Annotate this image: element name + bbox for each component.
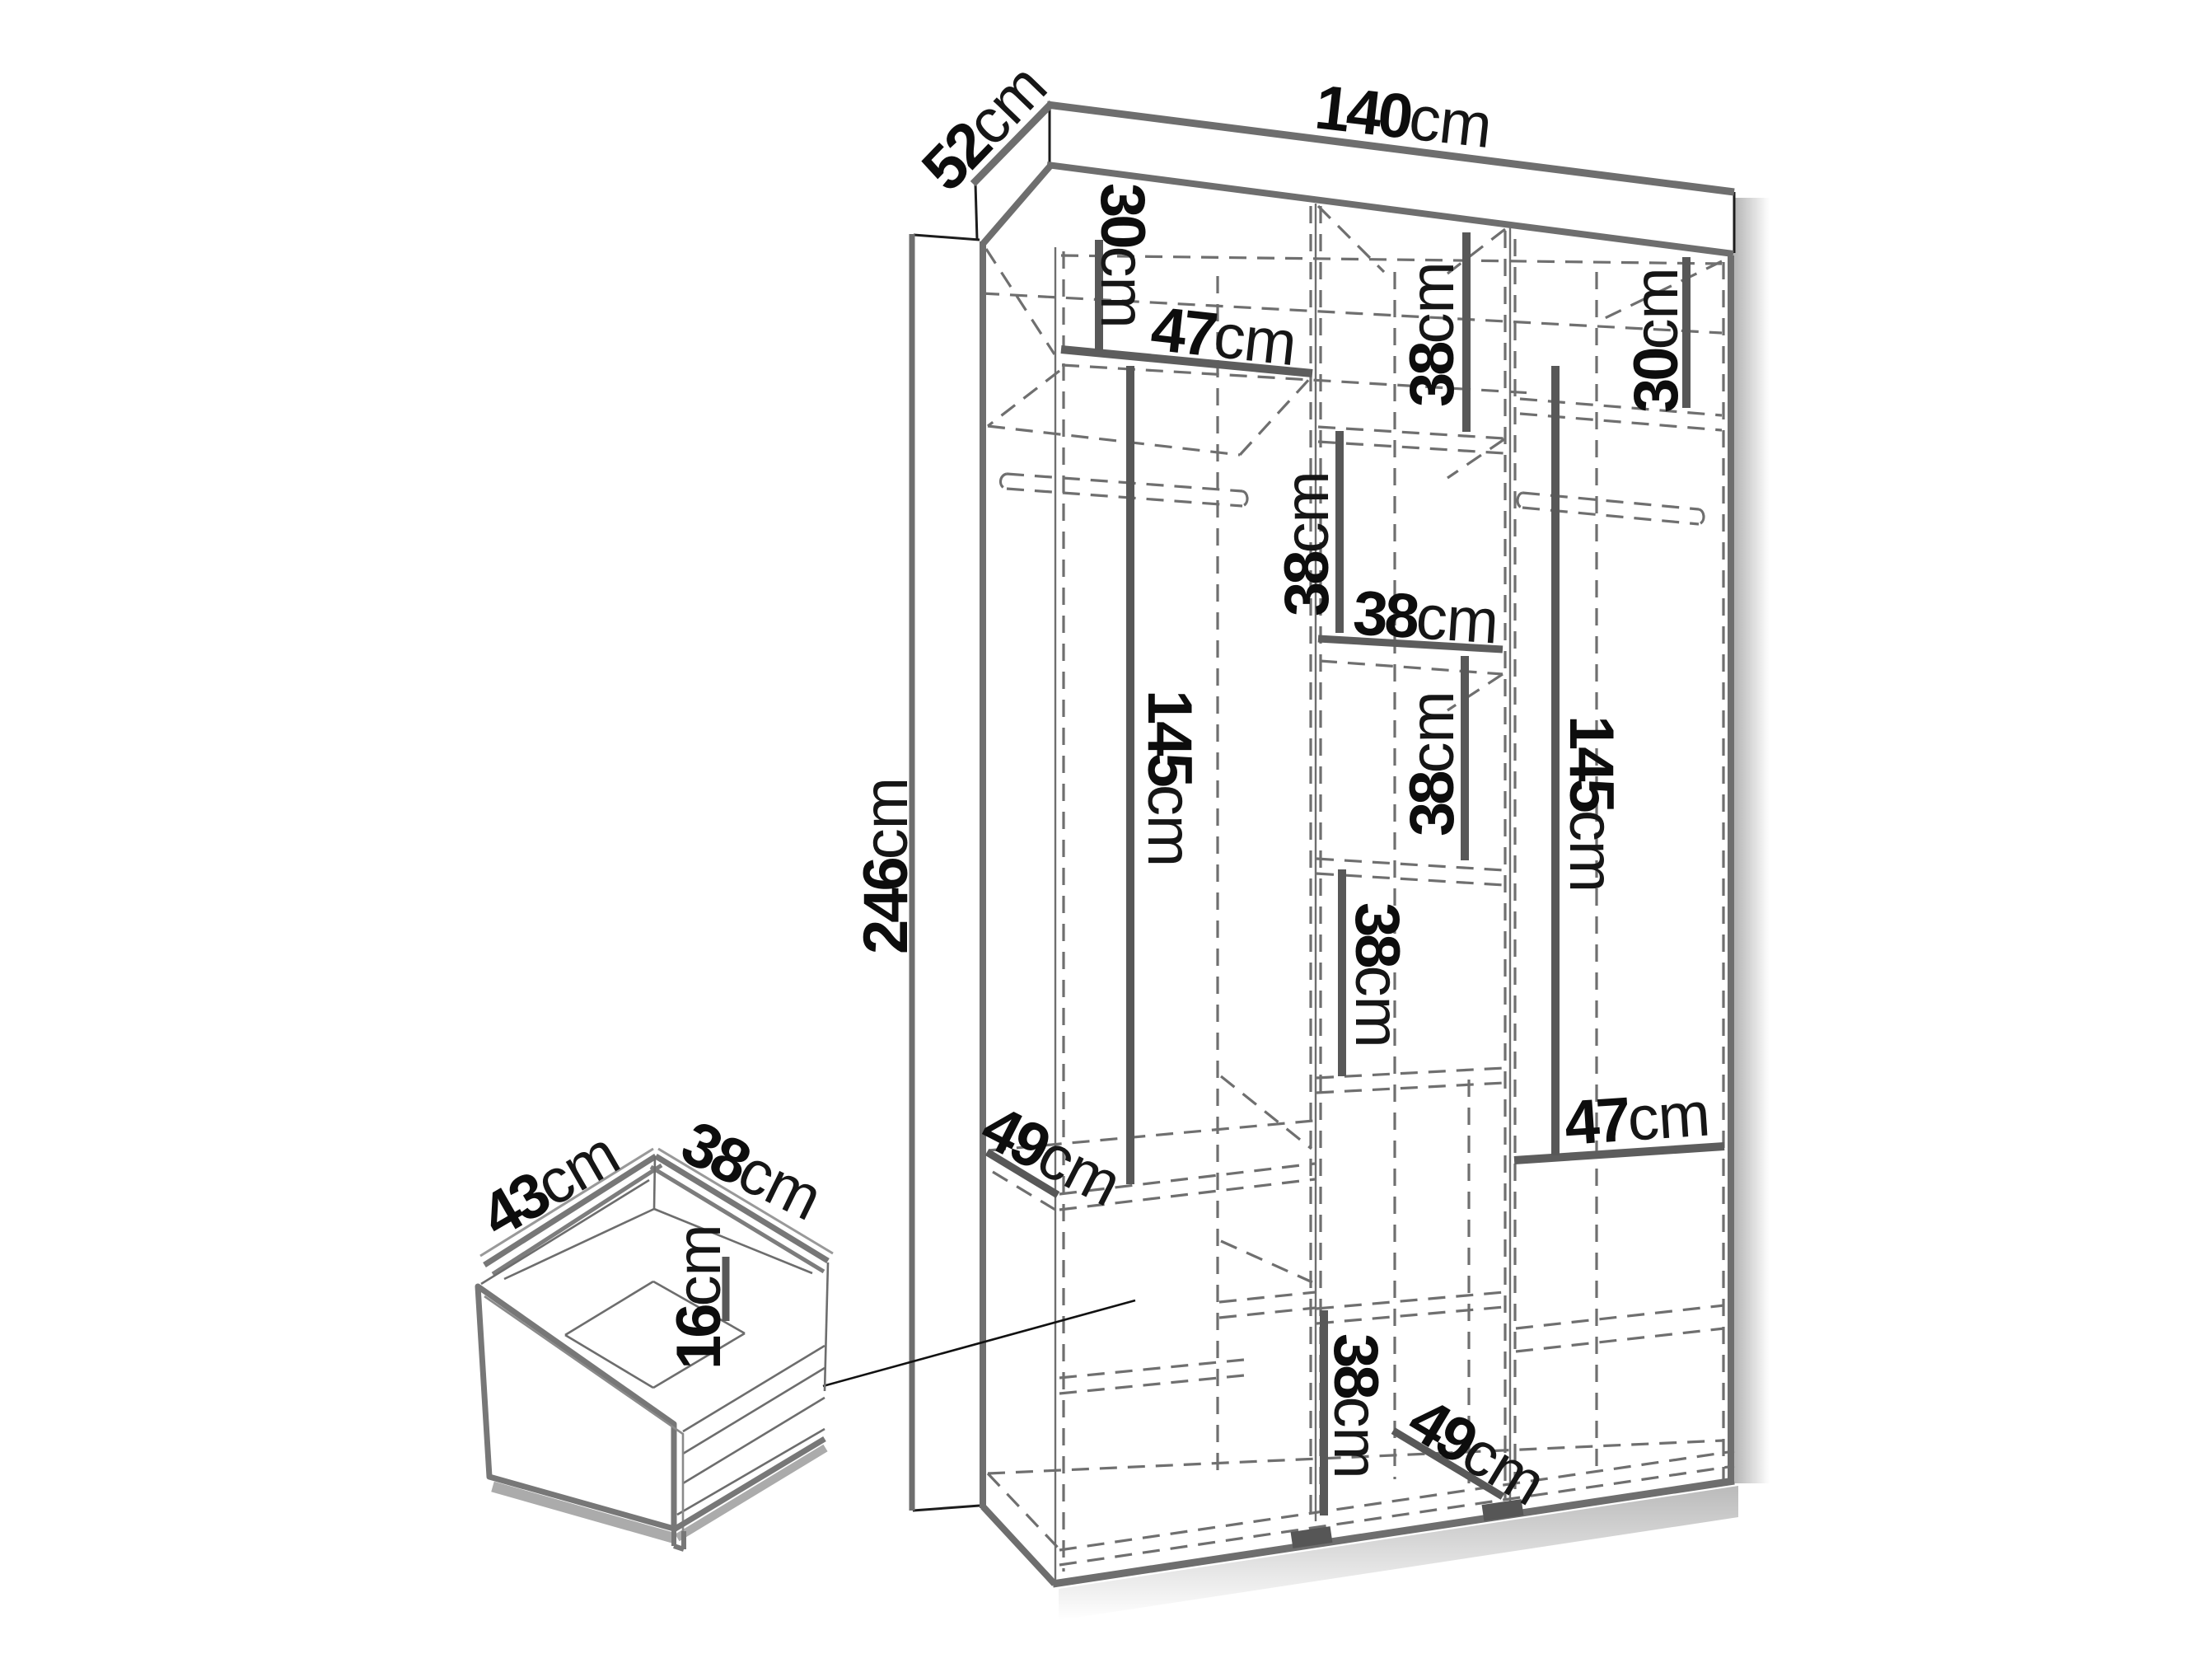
svg-text:38cm: 38cm — [1321, 1333, 1391, 1478]
svg-text:30cm: 30cm — [1621, 268, 1691, 413]
svg-text:145cm: 145cm — [1134, 690, 1204, 866]
svg-text:38cm: 38cm — [1397, 262, 1467, 407]
svg-text:145cm: 145cm — [1556, 715, 1626, 892]
svg-text:47cm: 47cm — [1562, 1079, 1711, 1158]
svg-text:38cm: 38cm — [1272, 471, 1342, 616]
svg-text:30cm: 30cm — [1087, 183, 1157, 328]
svg-text:38cm: 38cm — [1397, 691, 1467, 836]
svg-text:38cm: 38cm — [1351, 578, 1500, 657]
svg-text:16cm: 16cm — [664, 1225, 734, 1370]
svg-text:246cm: 246cm — [851, 778, 921, 954]
svg-text:38cm: 38cm — [1342, 902, 1412, 1047]
